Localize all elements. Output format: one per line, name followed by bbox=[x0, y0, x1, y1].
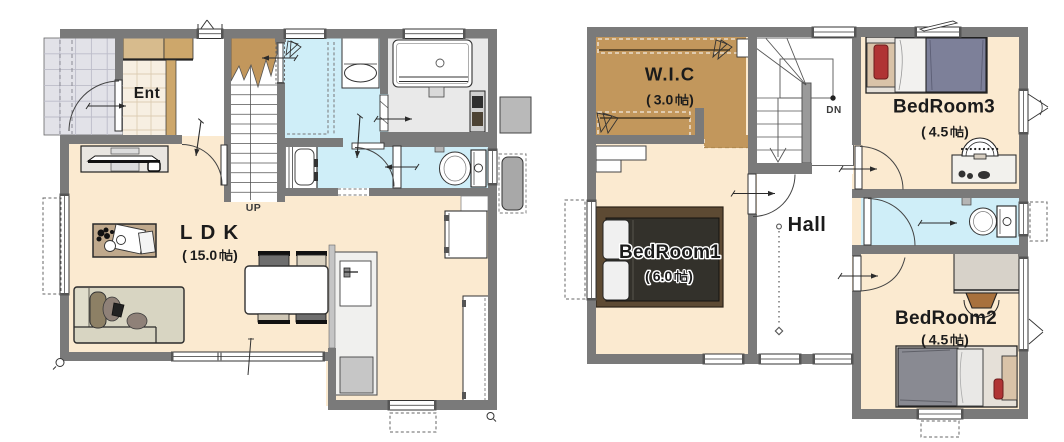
svg-text:BedRoom1: BedRoom1 bbox=[619, 242, 721, 263]
svg-text:): ) bbox=[964, 124, 969, 140]
svg-text:(: ( bbox=[921, 332, 926, 348]
svg-text:4.5: 4.5 bbox=[929, 124, 949, 140]
svg-text:(: ( bbox=[182, 247, 187, 263]
svg-text:4.5: 4.5 bbox=[929, 332, 949, 348]
svg-text:3.0: 3.0 bbox=[654, 92, 674, 108]
svg-text:): ) bbox=[233, 247, 238, 263]
svg-text:Hall: Hall bbox=[788, 214, 827, 236]
svg-text:6.0: 6.0 bbox=[653, 268, 673, 284]
svg-text:): ) bbox=[964, 332, 969, 348]
svg-text:(: ( bbox=[921, 124, 926, 140]
svg-text:UP: UP bbox=[246, 202, 262, 214]
svg-text:BedRoom2: BedRoom2 bbox=[895, 308, 997, 329]
svg-text:Ent: Ent bbox=[134, 85, 160, 102]
svg-text:DN: DN bbox=[826, 105, 841, 116]
svg-text:): ) bbox=[689, 92, 694, 108]
svg-text:(: ( bbox=[646, 92, 651, 108]
svg-text:L D K: L D K bbox=[180, 221, 240, 244]
svg-text:15.0: 15.0 bbox=[190, 247, 217, 263]
svg-text:(: ( bbox=[645, 268, 650, 284]
svg-text:BedRoom3: BedRoom3 bbox=[893, 97, 995, 118]
svg-text:): ) bbox=[688, 268, 693, 284]
svg-text:W.I.C: W.I.C bbox=[645, 64, 695, 85]
